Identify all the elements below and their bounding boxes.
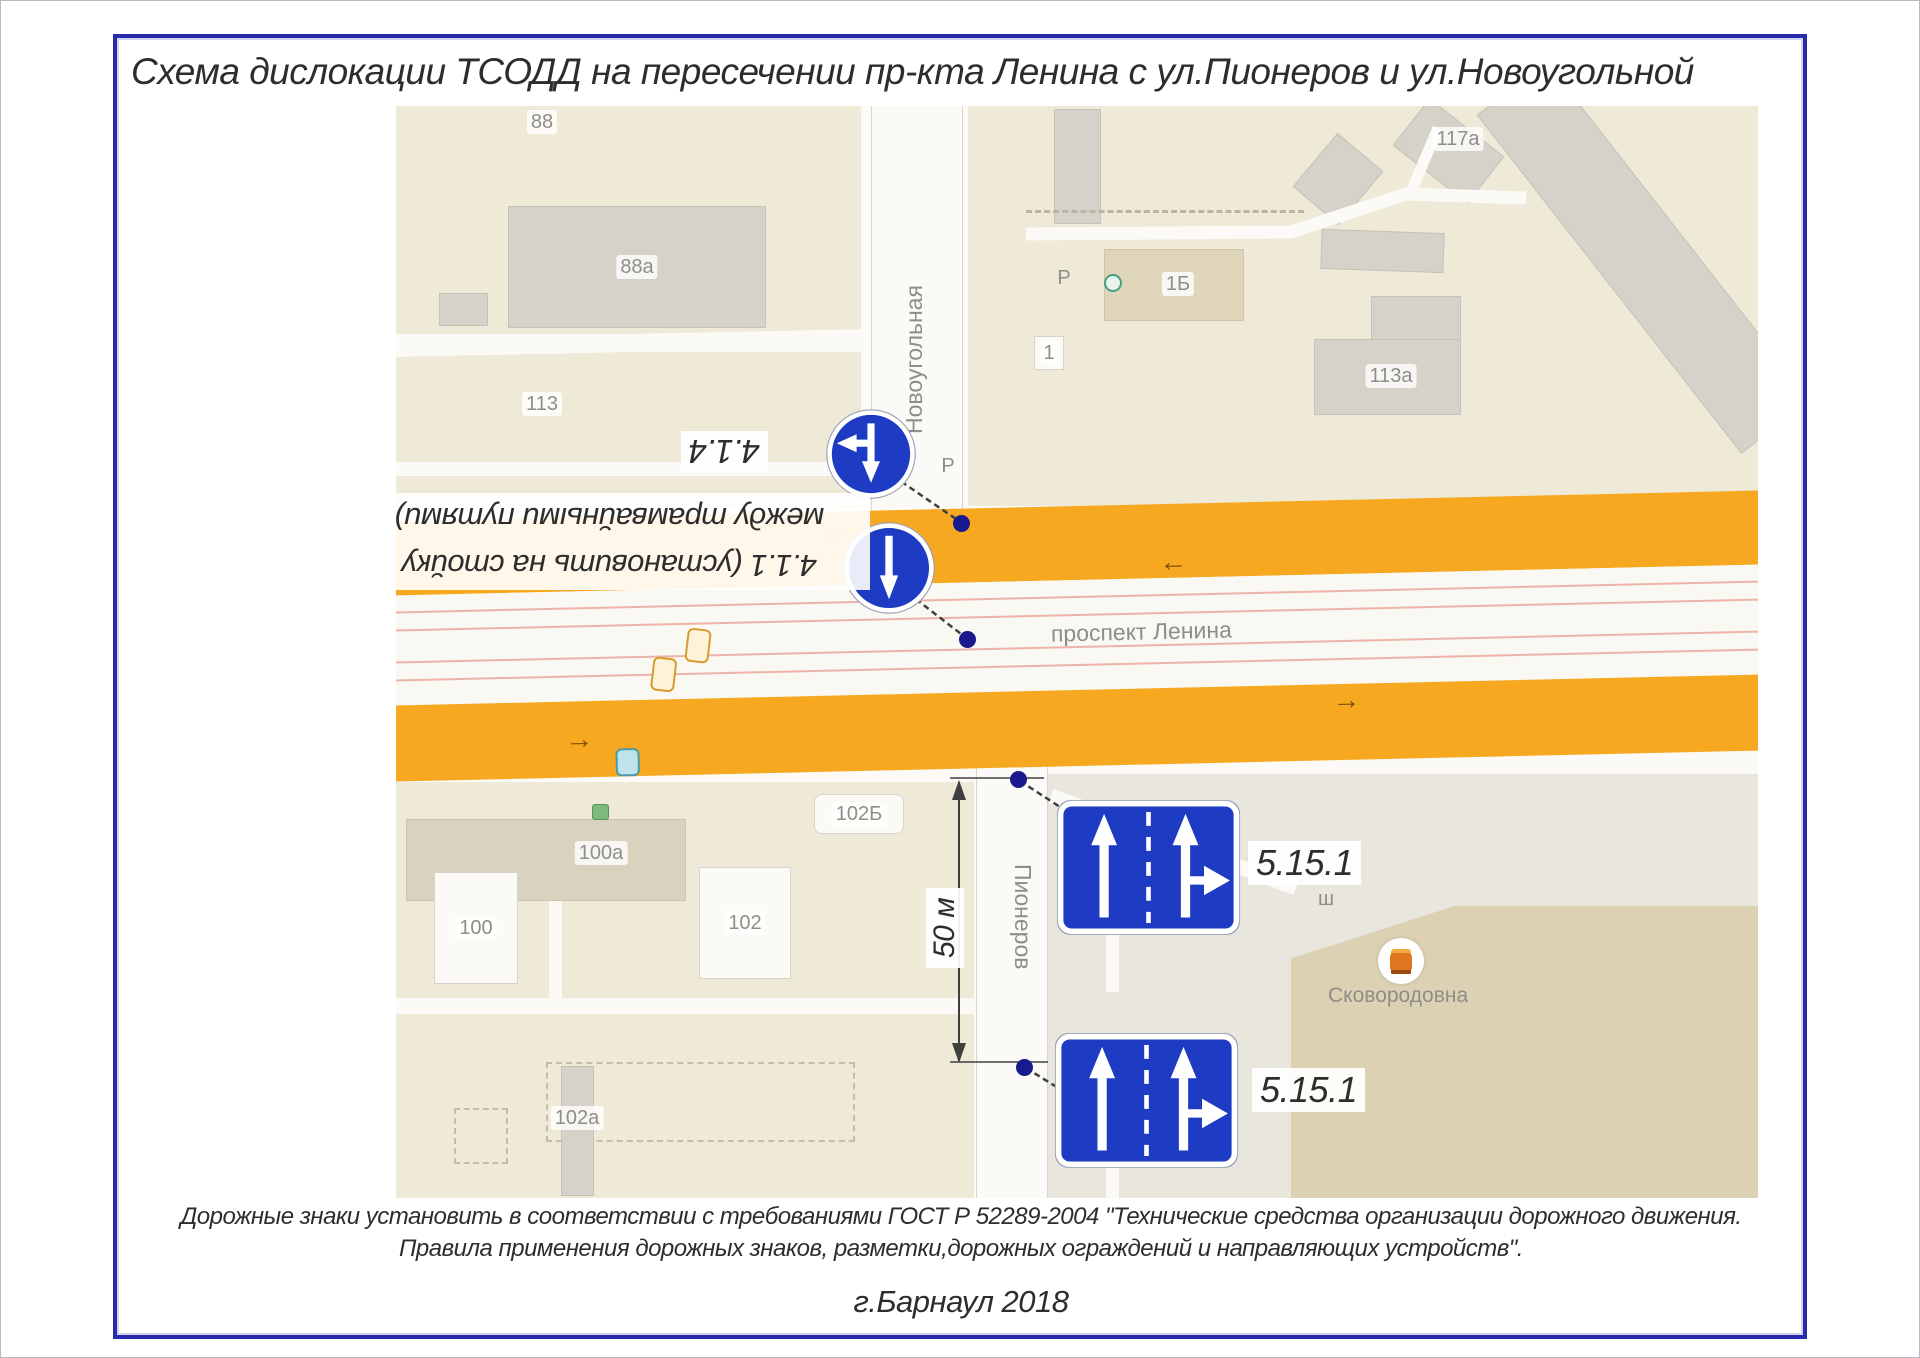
sign-4-1-1-note-rotated: 4.1.1 (установить на стойку между трамва… xyxy=(349,493,870,590)
food-poi-icon xyxy=(1378,938,1424,984)
building-label: 113а xyxy=(1365,364,1416,388)
sign-code-label-rotated: 4.1.4 xyxy=(681,431,768,471)
avenue-name-label: проспект Ленина xyxy=(1051,617,1233,648)
street-pionerov xyxy=(976,761,1048,1198)
city-year: г.Барнаул 2018 xyxy=(131,1284,1791,1320)
page-title: Схема дислокации ТСОДД на пересечении пр… xyxy=(131,51,1631,93)
dimension-label: 50 м xyxy=(926,888,964,968)
arrow-right-icon: → xyxy=(1332,686,1361,715)
org-marker-icon xyxy=(1104,274,1122,292)
bus-icon xyxy=(615,748,640,777)
building-label: 102а xyxy=(551,1106,604,1130)
building-small xyxy=(1320,229,1444,273)
sign-post xyxy=(1106,934,1119,992)
note-line: между трамвайными путями) xyxy=(357,495,862,542)
building-small xyxy=(1054,109,1101,224)
sign-5-15-1-bottom xyxy=(1054,1032,1239,1169)
scheme-sheet: Схема дислокации ТСОДД на пересечении пр… xyxy=(0,0,1920,1358)
parking-letter: Р xyxy=(1053,266,1074,290)
sign-code-label: 5.15.1 xyxy=(1252,1068,1365,1112)
tram-icon xyxy=(684,627,712,664)
building-small xyxy=(439,293,488,326)
sign-code-label: 5.15.1 xyxy=(1248,841,1361,885)
street-segment xyxy=(396,462,866,476)
mandatory-direction-icon xyxy=(826,409,916,499)
sign-location-dot xyxy=(1016,1059,1033,1076)
poi-label: Сковородовна xyxy=(1328,984,1468,1008)
tram-track-line xyxy=(396,647,1758,682)
building-label: 113 xyxy=(522,392,562,416)
sign-4-1-4 xyxy=(826,409,916,499)
street-name-pionerov: Пионеров xyxy=(1009,864,1036,969)
building-label: 1 xyxy=(1039,341,1058,365)
building-label: 102Б xyxy=(832,802,887,826)
lane-directions-icon xyxy=(1054,1032,1239,1169)
map-block xyxy=(396,352,861,462)
building-label: 102 xyxy=(724,911,765,935)
city-map: проспект Ленина ← → → 88 88а xyxy=(396,106,1758,1198)
map-block xyxy=(1291,906,1758,1198)
sign-5-15-1-top xyxy=(1056,799,1241,936)
misc-map-letter: ш xyxy=(1314,887,1338,911)
arrow-left-icon: ← xyxy=(1159,548,1188,577)
sign-location-dot xyxy=(959,631,976,648)
gost-note-line2: Правила применения дорожных знаков, разм… xyxy=(131,1235,1791,1263)
street-segment xyxy=(396,998,974,1014)
boundary-dashed-line xyxy=(1026,210,1304,213)
tram-icon xyxy=(650,656,678,693)
parking-letter: Р xyxy=(937,454,958,478)
building-label: 100а xyxy=(575,841,628,865)
lane-directions-icon xyxy=(1056,799,1241,936)
boundary-dashed-rect xyxy=(454,1108,508,1164)
building-label: 1Б xyxy=(1162,272,1194,296)
sign-location-dot xyxy=(953,515,970,532)
arrow-right-icon: → xyxy=(565,725,594,754)
building-102a xyxy=(561,1066,594,1196)
sign-post xyxy=(1106,1167,1119,1198)
note-line: 4.1.1 (установить на стойку xyxy=(357,542,862,589)
burger-glyph-icon xyxy=(1390,953,1412,970)
building-label: 88 xyxy=(527,110,557,134)
building-small xyxy=(1371,296,1461,343)
building-label: 117а xyxy=(1432,127,1483,151)
org-marker-icon xyxy=(592,804,609,820)
gost-note-line1: Дорожные знаки установить в соответствии… xyxy=(131,1203,1791,1231)
building-label: 88а xyxy=(616,255,657,279)
building-label: 100 xyxy=(455,916,496,940)
sign-location-dot xyxy=(1010,771,1027,788)
